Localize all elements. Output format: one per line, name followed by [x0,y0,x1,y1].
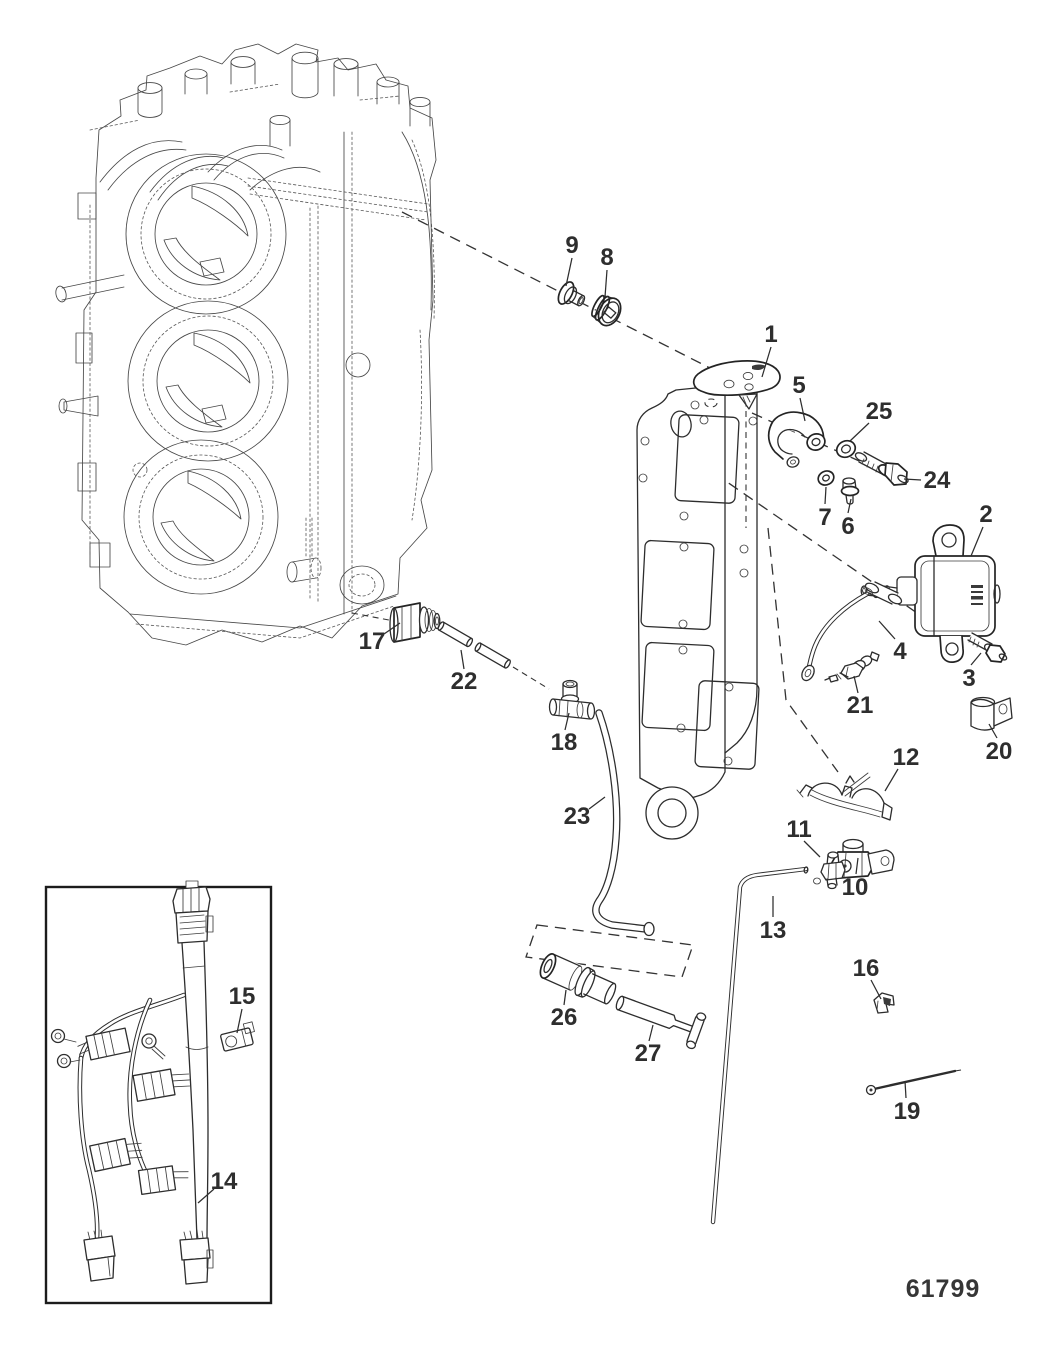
harness-connector-b [133,1066,192,1101]
coil-top-ear [933,525,964,556]
callout-12: 12 [893,744,920,771]
callout-leader-6 [848,499,851,513]
callout-25: 25 [866,398,893,425]
part-5-clamp [769,412,828,469]
cylinder-studs [138,52,430,146]
callouts-layer: 1234567891011121314151617181920212223242… [198,232,1012,1203]
callout-leader-7 [825,487,826,504]
callout-16: 16 [853,955,880,982]
callout-leader-19 [905,1081,906,1098]
callout-leader-11 [804,841,820,857]
callout-22: 22 [451,668,478,695]
drawing-number: 61799 [906,1275,981,1303]
callout-17: 17 [359,628,386,655]
detail-rails [90,84,428,220]
callout-6: 6 [841,513,854,540]
part-1-bracket-plate [637,361,780,839]
coil-bottom-ear [940,636,963,662]
callout-leader-27 [649,1025,653,1041]
part-22-tubing [437,621,511,669]
part-17-fitting [390,603,440,642]
part-26-coupler [536,950,619,1009]
callout-11: 11 [786,816,811,843]
exploded-parts-diagram: 1234567891011121314151617181920212223242… [0,0,1057,1349]
callout-27: 27 [635,1040,662,1067]
bottom-boss [130,518,396,638]
callout-leader-25 [850,423,869,441]
parts-diagram-page: 1234567891011121314151617181920212223242… [0,0,1057,1349]
part-12-wire-retainer [797,773,892,820]
callout-7: 7 [818,504,831,531]
callout-18: 18 [551,729,578,756]
part-16-clip [874,993,894,1013]
callout-8: 8 [600,244,613,271]
callout-14: 14 [211,1168,238,1195]
callout-leader-8 [605,270,607,297]
callout-2: 2 [979,501,992,528]
callout-1: 1 [764,321,777,348]
callout-15: 15 [229,983,256,1010]
callout-23: 23 [564,803,591,830]
harness-top-connector [173,881,213,943]
part-24-bolt [854,451,909,485]
callout-leader-4 [879,621,895,639]
callout-19: 19 [894,1098,921,1125]
callout-leader-16 [871,980,881,999]
callout-3: 3 [962,665,975,692]
engine-block [54,44,436,645]
callout-10: 10 [842,874,869,901]
callout-leader-26 [564,990,566,1005]
callout-leader-23 [589,797,605,809]
part-7-washer [816,468,836,487]
callout-13: 13 [760,917,787,944]
cylinder-bore-1 [126,154,286,314]
callout-leader-12 [885,769,898,791]
callout-26: 26 [551,1004,578,1031]
part-25-washer [834,438,858,461]
callout-leader-3 [971,653,981,665]
callout-4: 4 [893,638,907,665]
part-9-grommet [555,280,589,313]
harness-bottom-connector-left [84,1230,115,1281]
cylinder-bore-3 [124,440,278,594]
cylinder-bore-2 [128,301,288,461]
callout-24: 24 [924,467,951,494]
callout-5: 5 [792,372,805,399]
part-19-cable-tie [867,1070,962,1095]
callout-21: 21 [847,692,874,719]
part-21-spark-plug [825,652,879,682]
mount-tab [694,361,780,395]
side-bosses [54,193,124,567]
part-18-tee-fitting [550,681,595,720]
callout-leader-21 [854,676,858,693]
callout-leader-22 [461,650,464,669]
part-6-bolt [842,478,859,504]
intake-runners [100,141,320,200]
part-3-bolt [968,633,1008,662]
part-8-plug [588,291,625,330]
callout-20: 20 [986,738,1013,765]
callout-9: 9 [565,232,578,259]
block-edges [133,132,434,616]
part-14-wiring-harness [52,881,214,1284]
part-20-clamp [971,698,1012,731]
callout-leader-2 [971,527,983,556]
